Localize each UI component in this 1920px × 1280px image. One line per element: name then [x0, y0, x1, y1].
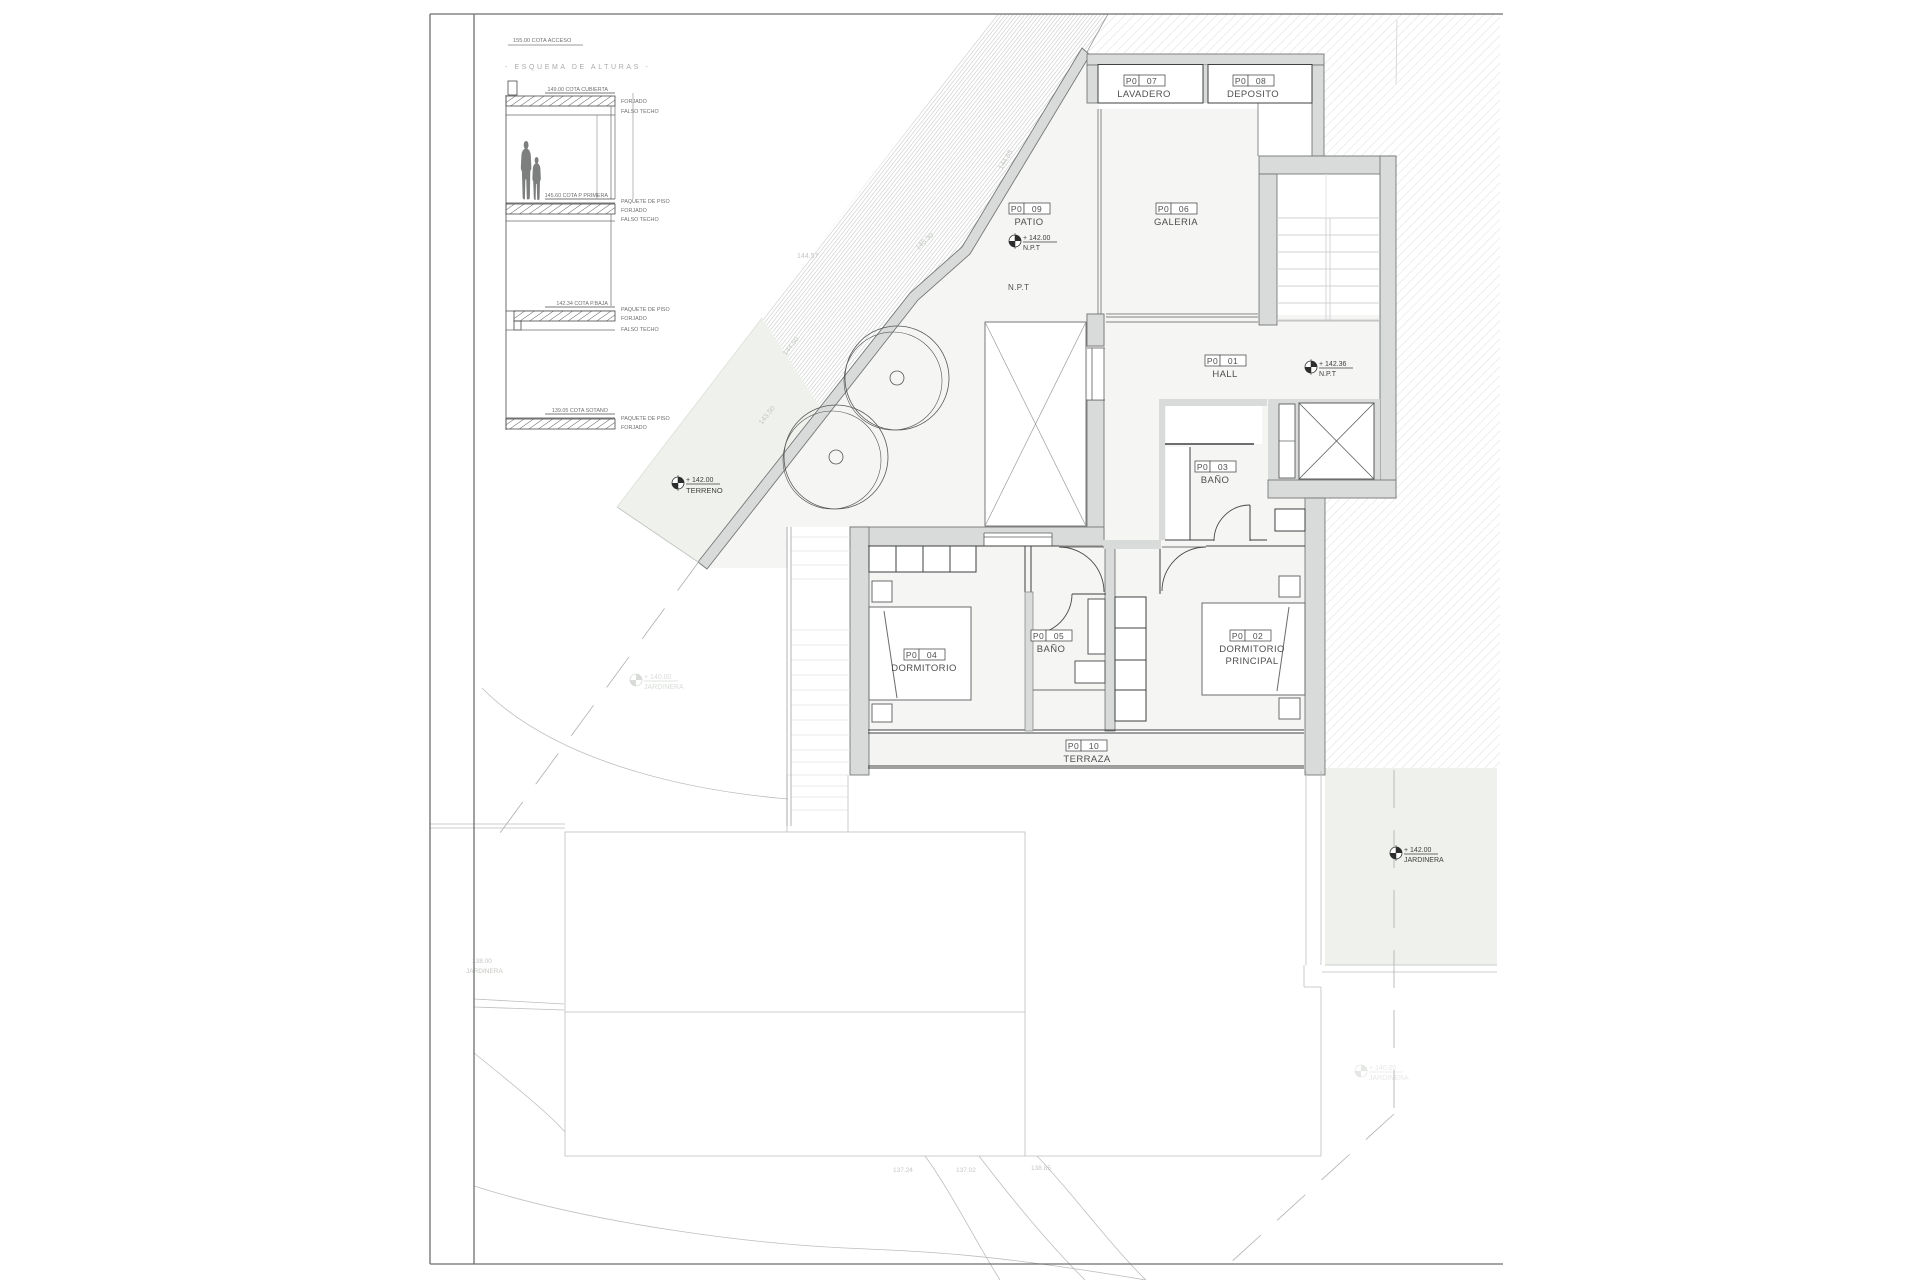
svg-text:P0: P0 [906, 650, 917, 660]
svg-text:JARDINERA: JARDINERA [644, 684, 684, 691]
svg-text:FORJADO: FORJADO [621, 208, 647, 214]
svg-text:PAQUETE DE PISO: PAQUETE DE PISO [621, 199, 670, 205]
svg-text:PATIO: PATIO [1014, 217, 1043, 228]
svg-text:FORJADO: FORJADO [621, 99, 647, 105]
svg-text:FALSO TECHO: FALSO TECHO [621, 109, 659, 115]
svg-text:+ 142.00: + 142.00 [1023, 235, 1051, 242]
svg-text:P0: P0 [1011, 204, 1022, 214]
svg-text:FORJADO: FORJADO [621, 316, 647, 322]
svg-text:03: 03 [1218, 462, 1228, 472]
svg-text:N.P.T: N.P.T [1023, 245, 1041, 252]
svg-text:139.05 COTA SOTANO: 139.05 COTA SOTANO [552, 408, 608, 414]
svg-text:P0: P0 [1197, 462, 1208, 472]
svg-text:P0: P0 [1235, 76, 1246, 86]
svg-text:08: 08 [1256, 76, 1266, 86]
svg-text:TERRENO: TERRENO [686, 486, 723, 495]
svg-text:07: 07 [1147, 76, 1157, 86]
svg-text:TERRAZA: TERRAZA [1063, 754, 1110, 765]
svg-text:+ 142.36: + 142.36 [1319, 361, 1347, 368]
svg-text:DORMITORIO: DORMITORIO [1219, 644, 1285, 655]
svg-text:P0: P0 [1033, 631, 1044, 641]
svg-text:P0: P0 [1126, 76, 1137, 86]
svg-text:06: 06 [1179, 204, 1189, 214]
svg-text:PAQUETE DE PISO: PAQUETE DE PISO [621, 307, 670, 313]
svg-text:P0: P0 [1158, 204, 1169, 214]
svg-text:DORMITORIO: DORMITORIO [891, 663, 957, 674]
svg-text:GALERIA: GALERIA [1154, 217, 1198, 228]
svg-text:FALSO TECHO: FALSO TECHO [621, 217, 659, 223]
svg-text:137.02: 137.02 [956, 1167, 976, 1174]
svg-text:138.85: 138.85 [1031, 1165, 1051, 1172]
svg-text:PAQUETE DE PISO: PAQUETE DE PISO [621, 416, 670, 422]
svg-text:01: 01 [1228, 356, 1238, 366]
svg-text:FORJADO: FORJADO [621, 425, 647, 431]
svg-text:+ 140.00: + 140.00 [1369, 1065, 1397, 1072]
svg-text:10: 10 [1089, 741, 1099, 751]
svg-text:BAÑO: BAÑO [1037, 644, 1066, 655]
svg-text:N.P.T: N.P.T [1319, 371, 1337, 378]
svg-text:144.57: 144.57 [797, 253, 819, 260]
svg-text:05: 05 [1054, 631, 1064, 641]
svg-text:JARDINERA: JARDINERA [1404, 857, 1444, 864]
svg-text:138.00: 138.00 [472, 958, 492, 965]
svg-text:04: 04 [927, 650, 937, 660]
svg-text:P0: P0 [1232, 631, 1243, 641]
svg-text:P0: P0 [1068, 741, 1079, 751]
svg-text:149.00 COTA CUBIERTA: 149.00 COTA CUBIERTA [547, 87, 608, 93]
svg-text:145.60 COTA P PRIMERA: 145.60 COTA P PRIMERA [545, 193, 609, 199]
svg-text:JARDINERA: JARDINERA [1369, 1075, 1409, 1082]
svg-text:FALSO TECHO: FALSO TECHO [621, 327, 659, 333]
svg-text:HALL: HALL [1212, 369, 1237, 380]
svg-text:+ 140.00: + 140.00 [644, 674, 672, 681]
svg-text:PRINCIPAL: PRINCIPAL [1225, 656, 1278, 667]
svg-text:155.00 COTA ACCESO: 155.00 COTA ACCESO [513, 38, 572, 44]
svg-text:JARDINERA: JARDINERA [466, 968, 504, 975]
svg-text:BAÑO: BAÑO [1201, 475, 1230, 486]
svg-text:+ 142.00: + 142.00 [686, 477, 714, 484]
svg-text:P0: P0 [1207, 356, 1218, 366]
svg-text:+ 142.00: + 142.00 [1404, 847, 1432, 854]
svg-text:142.34 COTA P.BAJA: 142.34 COTA P.BAJA [556, 301, 608, 307]
svg-text:LAVADERO: LAVADERO [1117, 89, 1171, 100]
svg-text:N.P.T: N.P.T [1008, 283, 1029, 292]
svg-text:137.24: 137.24 [893, 1167, 913, 1174]
svg-text:- ESQUEMA DE ALTURAS -: - ESQUEMA DE ALTURAS - [505, 64, 650, 71]
svg-text:09: 09 [1032, 204, 1042, 214]
svg-text:DEPOSITO: DEPOSITO [1227, 89, 1279, 100]
svg-text:02: 02 [1253, 631, 1263, 641]
